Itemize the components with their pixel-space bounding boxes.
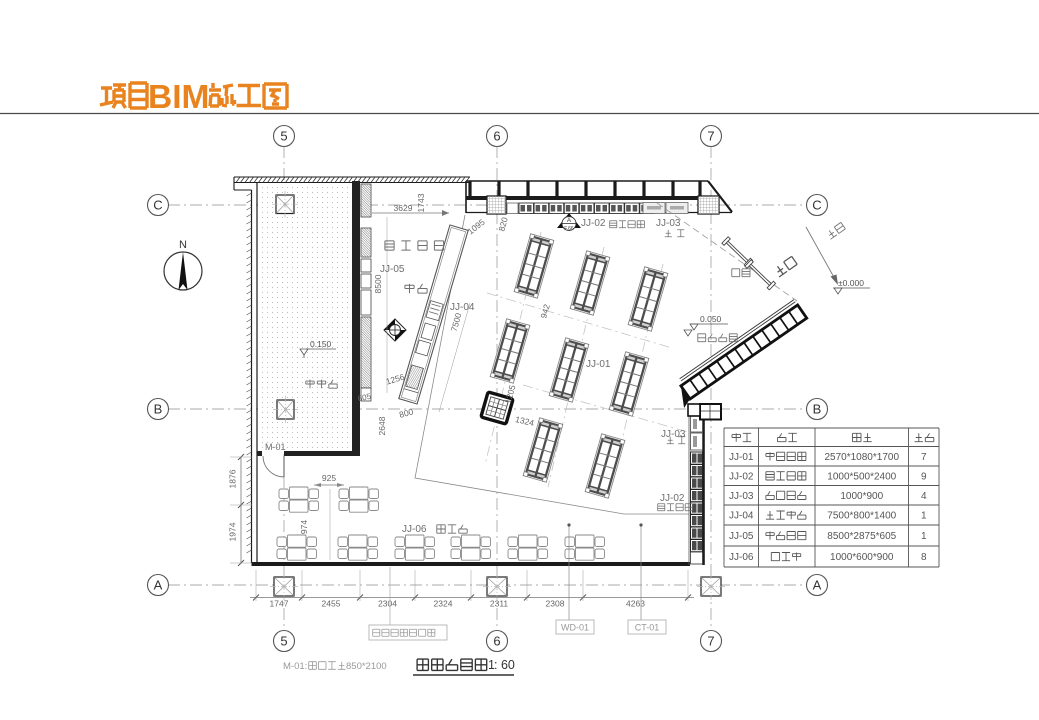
svg-text:2570*1080*1700: 2570*1080*1700	[824, 452, 899, 463]
svg-text:JJ-05: JJ-05	[729, 531, 754, 542]
svg-text:A: A	[813, 578, 822, 593]
svg-text:JJ-01: JJ-01	[586, 359, 611, 370]
svg-text:974: 974	[299, 520, 309, 534]
svg-text:4: 4	[921, 491, 927, 502]
svg-text:JJ-06: JJ-06	[402, 524, 427, 535]
svg-text:7: 7	[921, 452, 927, 463]
svg-text:0.050: 0.050	[700, 314, 722, 324]
svg-text:5: 5	[280, 129, 287, 144]
svg-text:6: 6	[493, 634, 500, 649]
svg-text:2304: 2304	[378, 599, 397, 609]
svg-text:8500*2875*605: 8500*2875*605	[827, 531, 896, 542]
svg-text:1000*500*2400: 1000*500*2400	[827, 471, 896, 482]
svg-text:850*2100: 850*2100	[346, 661, 387, 672]
svg-text:: 60: : 60	[494, 658, 515, 672]
svg-text:±0.000: ±0.000	[838, 278, 864, 288]
svg-text:BIM: BIM	[148, 79, 209, 116]
svg-text:JJ-04: JJ-04	[450, 302, 475, 313]
svg-text:JJ-02: JJ-02	[729, 471, 754, 482]
svg-text:1000*600*900: 1000*600*900	[830, 552, 894, 563]
svg-text:F.66: F.66	[564, 226, 574, 232]
svg-text:6: 6	[493, 129, 500, 144]
svg-text:5: 5	[280, 634, 287, 649]
svg-text:B: B	[154, 402, 163, 417]
svg-text:1876: 1876	[228, 469, 238, 488]
svg-text:1000*900: 1000*900	[840, 491, 883, 502]
svg-text:C: C	[812, 198, 821, 213]
svg-text:3629: 3629	[394, 203, 413, 213]
svg-text:C: C	[153, 198, 162, 213]
svg-text:8: 8	[921, 552, 927, 563]
svg-text:B: B	[813, 402, 822, 417]
svg-text:925: 925	[322, 473, 336, 483]
svg-text:1747: 1747	[270, 599, 289, 609]
svg-text:JJ-01: JJ-01	[729, 452, 754, 463]
svg-text:1: 1	[921, 531, 927, 542]
svg-text:JJ-03: JJ-03	[656, 218, 681, 229]
svg-text:JJ-06: JJ-06	[729, 552, 754, 563]
svg-text:JJ-04: JJ-04	[729, 511, 754, 522]
svg-text:JJ-05: JJ-05	[380, 264, 405, 275]
svg-text:7: 7	[707, 634, 714, 649]
svg-text:1743: 1743	[416, 193, 426, 212]
svg-text:JJ-02: JJ-02	[581, 218, 606, 229]
svg-text:2324: 2324	[434, 599, 453, 609]
svg-text:1974: 1974	[228, 522, 238, 541]
svg-text:M-01: M-01	[265, 442, 286, 452]
svg-text:2455: 2455	[322, 599, 341, 609]
svg-text:M-01:: M-01:	[283, 661, 307, 672]
svg-text:0.150: 0.150	[310, 339, 332, 349]
svg-text:A: A	[567, 218, 571, 224]
svg-text:JJ-02: JJ-02	[660, 493, 685, 504]
svg-text:JJ-03: JJ-03	[729, 491, 754, 502]
svg-text:9: 9	[921, 471, 927, 482]
svg-text:8500: 8500	[373, 274, 383, 293]
svg-text:CT-01: CT-01	[635, 623, 660, 633]
svg-text:1: 1	[921, 511, 927, 522]
svg-text:N: N	[179, 239, 187, 251]
svg-text:7500*800*1400: 7500*800*1400	[827, 511, 896, 522]
svg-text:2648: 2648	[377, 416, 387, 435]
svg-text:4263: 4263	[626, 599, 645, 609]
svg-text:2308: 2308	[546, 599, 565, 609]
svg-text:2311: 2311	[490, 599, 509, 609]
svg-text:WD-01: WD-01	[561, 623, 589, 633]
svg-text:A: A	[154, 578, 163, 593]
svg-text:7: 7	[707, 129, 714, 144]
